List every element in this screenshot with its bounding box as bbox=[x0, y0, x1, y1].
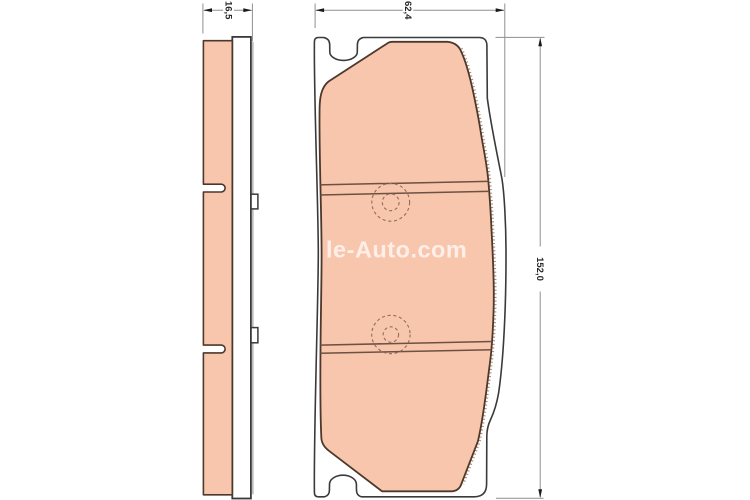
svg-text:le-Auto.com: le-Auto.com bbox=[326, 237, 467, 263]
svg-text:16,5: 16,5 bbox=[222, 1, 233, 20]
svg-text:62,4: 62,4 bbox=[402, 1, 413, 20]
svg-text:152,0: 152,0 bbox=[534, 257, 545, 281]
